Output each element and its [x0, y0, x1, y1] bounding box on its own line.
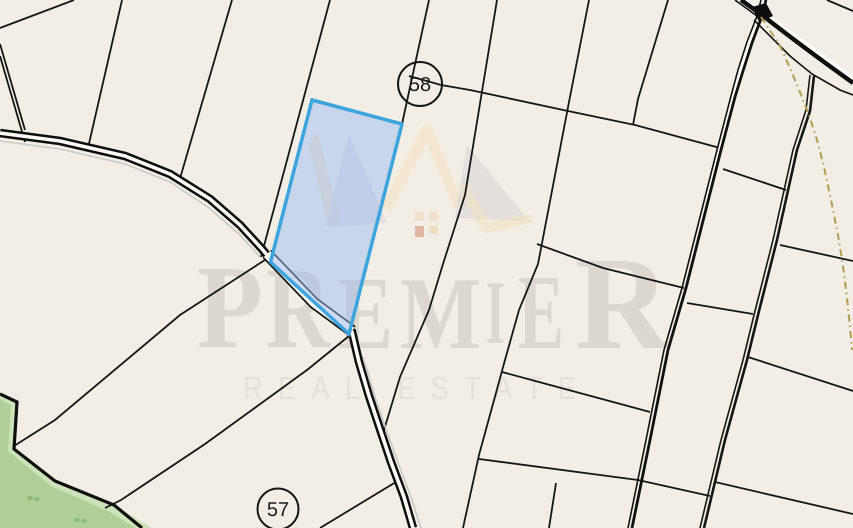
svg-text:I: I — [486, 262, 505, 363]
svg-text:P: P — [197, 241, 263, 373]
svg-text:REAL ESTATE: REAL ESTATE — [243, 370, 591, 406]
svg-text:E: E — [518, 254, 564, 372]
svg-text:R: R — [575, 229, 672, 377]
